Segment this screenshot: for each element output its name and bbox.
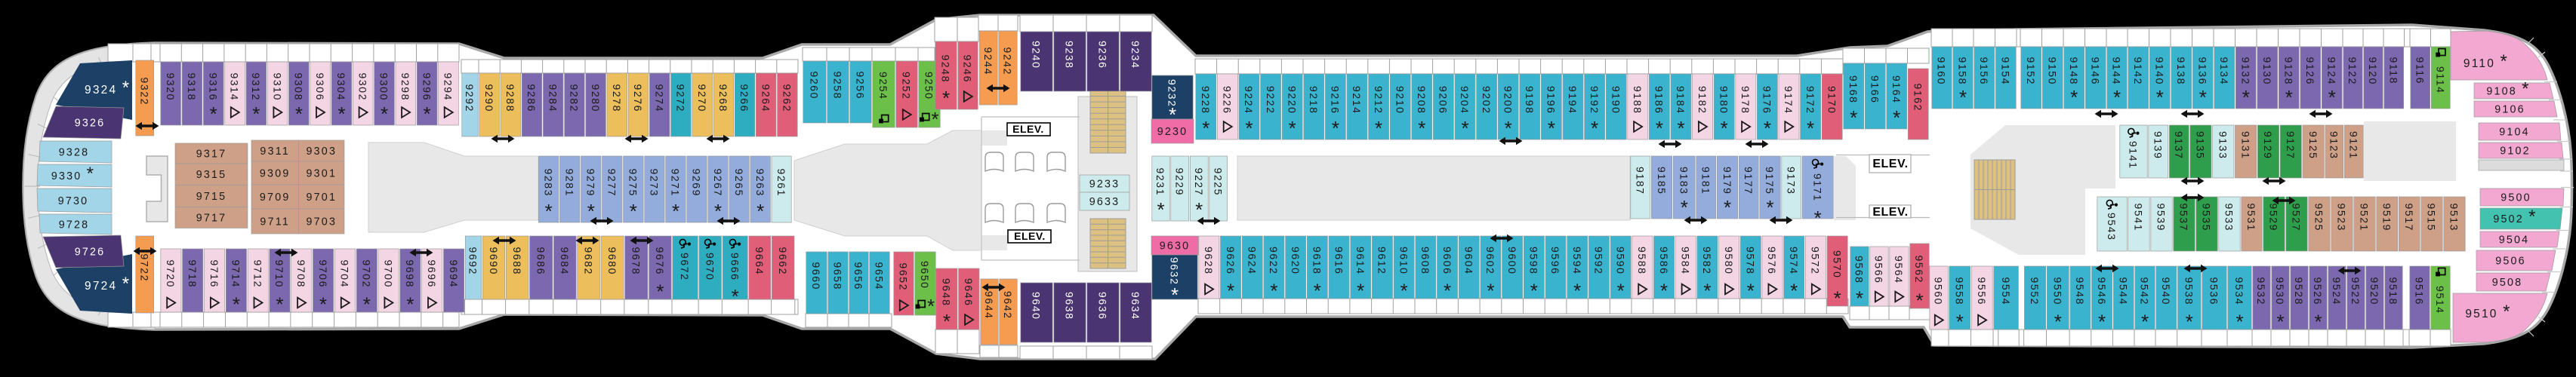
svg-text:9626: 9626: [1225, 247, 1237, 275]
svg-text:9586: 9586: [1658, 247, 1670, 275]
svg-text:9172: 9172: [1804, 86, 1816, 115]
svg-text:9320: 9320: [165, 73, 177, 102]
svg-text:9164: 9164: [1890, 75, 1903, 104]
svg-text:9614: 9614: [1354, 247, 1367, 275]
svg-text:*: *: [1573, 280, 1581, 302]
svg-text:9518: 9518: [2387, 277, 2399, 306]
svg-text:9272: 9272: [675, 84, 687, 113]
svg-text:9224: 9224: [1243, 86, 1255, 115]
svg-text:9630: 9630: [1160, 241, 1191, 253]
svg-text:9524: 9524: [2331, 277, 2343, 306]
svg-text:9194: 9194: [1567, 86, 1579, 115]
svg-text:9650: 9650: [919, 261, 931, 290]
svg-text:9183: 9183: [1678, 167, 1690, 195]
svg-text:9104: 9104: [2499, 127, 2530, 139]
svg-text:9678: 9678: [630, 247, 642, 276]
svg-text:*: *: [2156, 86, 2164, 109]
svg-text:9540: 9540: [2160, 277, 2172, 306]
svg-text:*: *: [732, 285, 739, 308]
svg-text:9178: 9178: [1739, 86, 1752, 115]
svg-text:9220: 9220: [1286, 86, 1298, 115]
svg-text:9231: 9231: [1154, 168, 1166, 197]
svg-text:*: *: [2328, 86, 2336, 109]
svg-text:*: *: [931, 108, 938, 130]
svg-text:*: *: [1332, 117, 1339, 139]
svg-text:*: *: [1814, 207, 1822, 229]
svg-text:9680: 9680: [606, 247, 618, 276]
svg-text:9692: 9692: [467, 247, 479, 276]
svg-text:*: *: [1660, 280, 1668, 302]
svg-text:9138: 9138: [2175, 57, 2187, 86]
svg-text:9516: 9516: [2414, 277, 2426, 306]
svg-text:9162: 9162: [1912, 84, 1924, 112]
svg-text:9612: 9612: [1376, 247, 1388, 275]
svg-text:9515: 9515: [2426, 204, 2438, 232]
svg-text:9186: 9186: [1653, 86, 1665, 115]
svg-text:*: *: [295, 103, 303, 125]
svg-text:*: *: [1747, 280, 1755, 302]
svg-text:9248: 9248: [940, 55, 952, 84]
svg-text:9258: 9258: [832, 72, 844, 100]
svg-text:9218: 9218: [1308, 86, 1320, 115]
svg-text:*: *: [2070, 86, 2078, 109]
svg-text:9694: 9694: [448, 260, 460, 289]
svg-text:9652: 9652: [898, 263, 910, 292]
svg-text:9519: 9519: [2380, 204, 2393, 232]
svg-text:9261: 9261: [775, 169, 787, 198]
svg-text:9514: 9514: [2434, 286, 2446, 314]
svg-text:9282: 9282: [569, 84, 581, 113]
svg-text:9711: 9711: [260, 216, 290, 228]
svg-text:9676: 9676: [654, 247, 666, 276]
svg-text:9234: 9234: [1129, 41, 1142, 69]
svg-text:9541: 9541: [2133, 204, 2145, 232]
svg-text:9148: 9148: [2068, 57, 2080, 86]
svg-text:9290: 9290: [483, 84, 495, 113]
svg-text:9523: 9523: [2336, 204, 2348, 232]
svg-text:9310: 9310: [271, 73, 283, 102]
svg-text:9266: 9266: [738, 84, 750, 113]
svg-text:9142: 9142: [2132, 57, 2144, 86]
svg-text:9646: 9646: [963, 278, 975, 307]
svg-text:9600: 9600: [1506, 247, 1518, 275]
svg-text:9726: 9726: [75, 247, 106, 259]
svg-text:9204: 9204: [1459, 86, 1471, 115]
svg-text:ELEV.: ELEV.: [1872, 206, 1908, 219]
svg-text:9225: 9225: [1212, 168, 1224, 197]
svg-text:9686: 9686: [535, 247, 547, 276]
svg-text:9116: 9116: [2414, 57, 2426, 85]
svg-text:9276: 9276: [632, 84, 644, 113]
svg-text:9566: 9566: [1873, 256, 1885, 284]
svg-text:9120: 9120: [2367, 57, 2379, 86]
svg-text:9294: 9294: [442, 73, 454, 102]
svg-text:9602: 9602: [1484, 247, 1496, 275]
svg-text:9538: 9538: [2183, 277, 2195, 306]
svg-text:9129: 9129: [2262, 131, 2274, 160]
svg-text:*: *: [2242, 86, 2250, 109]
svg-text:9268: 9268: [717, 84, 729, 113]
svg-text:*: *: [2314, 311, 2322, 333]
svg-text:9288: 9288: [504, 84, 516, 113]
svg-text:*: *: [2236, 311, 2243, 333]
svg-text:9648: 9648: [941, 278, 953, 307]
svg-text:9300: 9300: [378, 73, 390, 102]
svg-text:9279: 9279: [585, 169, 597, 198]
svg-text:9154: 9154: [1999, 57, 2011, 86]
svg-text:*: *: [1834, 287, 1841, 310]
svg-text:9177: 9177: [1742, 167, 1755, 195]
svg-text:9144: 9144: [2111, 57, 2123, 86]
svg-text:9508: 9508: [2492, 277, 2523, 289]
svg-text:*: *: [1956, 311, 1964, 333]
svg-text:9156: 9156: [1978, 57, 1990, 86]
svg-text:ELEV.: ELEV.: [1014, 230, 1046, 242]
svg-text:*: *: [1202, 117, 1209, 139]
svg-text:9304: 9304: [335, 73, 347, 102]
svg-text:9560: 9560: [1933, 277, 1945, 306]
svg-text:9633: 9633: [1089, 196, 1120, 208]
svg-text:9550: 9550: [2052, 277, 2064, 306]
svg-text:9263: 9263: [754, 169, 766, 198]
svg-text:*: *: [1314, 280, 1321, 302]
svg-text:9242: 9242: [1002, 48, 1014, 76]
svg-text:9532: 9532: [2255, 277, 2267, 306]
svg-text:*: *: [2199, 86, 2207, 109]
svg-text:9132: 9132: [2239, 57, 2251, 86]
svg-text:9658: 9658: [832, 262, 844, 291]
svg-text:9628: 9628: [1203, 247, 1215, 275]
svg-text:9708: 9708: [295, 260, 307, 289]
svg-text:9672: 9672: [679, 253, 691, 281]
svg-text:9222: 9222: [1265, 86, 1277, 115]
svg-text:9572: 9572: [1810, 247, 1822, 275]
svg-text:9228: 9228: [1200, 86, 1212, 115]
svg-text:9134: 9134: [2218, 57, 2230, 86]
svg-text:9152: 9152: [2025, 57, 2037, 86]
svg-text:9166: 9166: [1869, 75, 1881, 104]
svg-text:9640: 9640: [1031, 292, 1043, 320]
svg-text:9660: 9660: [810, 262, 822, 291]
svg-text:9182: 9182: [1696, 86, 1709, 115]
svg-text:9590: 9590: [1614, 247, 1626, 275]
svg-text:9536: 9536: [2208, 277, 2220, 306]
svg-text:9584: 9584: [1679, 247, 1691, 275]
svg-text:*: *: [1375, 117, 1382, 139]
svg-text:9716: 9716: [208, 260, 220, 289]
svg-text:9114: 9114: [2434, 66, 2446, 94]
svg-text:9539: 9539: [2155, 204, 2168, 232]
svg-text:9529: 9529: [2268, 204, 2280, 232]
svg-text:9527: 9527: [2291, 204, 2303, 232]
svg-text:9670: 9670: [704, 253, 716, 281]
svg-text:9256: 9256: [855, 72, 867, 100]
svg-text:ELEV.: ELEV.: [1872, 158, 1908, 170]
svg-text:9710: 9710: [273, 260, 285, 289]
svg-text:9118: 9118: [2387, 57, 2399, 85]
svg-text:9150: 9150: [2046, 57, 2058, 86]
svg-text:*: *: [1724, 196, 1731, 219]
svg-text:9260: 9260: [809, 72, 821, 100]
svg-text:*: *: [656, 280, 664, 303]
svg-text:9562: 9562: [1913, 256, 1925, 284]
svg-text:9122: 9122: [2346, 57, 2359, 86]
svg-text:*: *: [1227, 280, 1234, 302]
svg-text:9314: 9314: [229, 73, 241, 102]
svg-text:9642: 9642: [1002, 291, 1014, 320]
svg-text:9554: 9554: [2000, 277, 2012, 306]
svg-text:*: *: [943, 310, 951, 333]
svg-text:*: *: [672, 200, 679, 222]
svg-text:9280: 9280: [590, 84, 602, 113]
svg-text:*: *: [1245, 117, 1253, 139]
svg-text:*: *: [1289, 117, 1296, 139]
svg-text:9564: 9564: [1893, 256, 1905, 284]
svg-text:9180: 9180: [1718, 86, 1730, 115]
svg-text:9303: 9303: [306, 146, 337, 158]
svg-text:9102: 9102: [2500, 146, 2531, 158]
svg-text:9212: 9212: [1373, 86, 1385, 115]
svg-text:*: *: [1270, 280, 1277, 302]
svg-text:*: *: [1915, 290, 1923, 312]
svg-text:9254: 9254: [877, 72, 889, 100]
svg-text:9703: 9703: [306, 216, 337, 228]
svg-text:*: *: [381, 103, 388, 125]
svg-text:9233: 9233: [1089, 179, 1120, 191]
svg-text:9265: 9265: [733, 169, 745, 198]
svg-text:*: *: [545, 200, 553, 222]
svg-text:9226: 9226: [1222, 86, 1234, 115]
svg-text:9250: 9250: [923, 72, 935, 100]
svg-text:9244: 9244: [982, 48, 994, 76]
svg-text:9106: 9106: [2494, 104, 2525, 116]
svg-text:9537: 9537: [2178, 204, 2190, 232]
svg-text:9175: 9175: [1764, 167, 1776, 195]
svg-text:*: *: [927, 295, 935, 317]
svg-text:9171: 9171: [1811, 173, 1823, 202]
svg-text:9230: 9230: [1157, 126, 1188, 138]
svg-text:*: *: [1677, 117, 1684, 139]
svg-text:*: *: [1703, 280, 1711, 302]
svg-text:9286: 9286: [525, 84, 538, 113]
svg-text:9546: 9546: [2096, 277, 2108, 306]
svg-text:9714: 9714: [230, 260, 242, 289]
svg-text:9185: 9185: [1656, 167, 1668, 195]
svg-text:9273: 9273: [649, 169, 661, 198]
svg-text:9198: 9198: [1524, 86, 1536, 115]
svg-text:*: *: [2276, 311, 2284, 333]
svg-text:9135: 9135: [2195, 131, 2207, 160]
svg-text:9137: 9137: [2173, 131, 2185, 160]
svg-text:9690: 9690: [488, 247, 500, 276]
svg-text:*: *: [1591, 117, 1598, 139]
svg-text:9548: 9548: [2074, 277, 2086, 306]
svg-text:9196: 9196: [1545, 86, 1558, 115]
svg-text:9240: 9240: [1031, 41, 1043, 69]
svg-text:*: *: [1959, 86, 1967, 109]
svg-text:9284: 9284: [547, 84, 559, 113]
svg-text:*: *: [1530, 280, 1538, 302]
svg-text:9309: 9309: [260, 168, 291, 180]
svg-text:9720: 9720: [165, 260, 177, 289]
svg-text:9140: 9140: [2153, 57, 2165, 86]
svg-text:*: *: [2285, 86, 2293, 109]
svg-text:9271: 9271: [670, 169, 682, 198]
svg-text:9124: 9124: [2325, 57, 2337, 86]
svg-text:9298: 9298: [399, 73, 411, 102]
svg-text:9662: 9662: [777, 247, 789, 276]
svg-text:*: *: [2113, 86, 2121, 109]
svg-text:9141: 9141: [2128, 141, 2140, 170]
svg-text:*: *: [424, 103, 431, 125]
svg-text:*: *: [1893, 106, 1900, 129]
svg-text:9202: 9202: [1481, 86, 1493, 115]
svg-text:9128: 9128: [2282, 57, 2294, 86]
svg-text:9127: 9127: [2285, 131, 2297, 160]
svg-text:9139: 9139: [2152, 131, 2165, 160]
svg-text:9654: 9654: [874, 262, 886, 291]
svg-text:*: *: [2186, 311, 2193, 333]
svg-text:9315: 9315: [196, 169, 227, 181]
svg-text:*: *: [210, 103, 217, 125]
svg-text:9608: 9608: [1419, 247, 1431, 275]
svg-text:9229: 9229: [1174, 168, 1186, 197]
svg-text:9616: 9616: [1333, 247, 1345, 275]
svg-text:9318: 9318: [186, 73, 198, 102]
svg-text:9123: 9123: [2328, 131, 2340, 160]
svg-text:9500: 9500: [2501, 192, 2531, 204]
svg-text:9704: 9704: [339, 260, 351, 289]
svg-text:9570: 9570: [1831, 250, 1843, 279]
svg-text:*: *: [1656, 117, 1663, 139]
svg-text:9638: 9638: [1064, 292, 1076, 320]
svg-text:9568: 9568: [1853, 256, 1866, 284]
svg-text:9312: 9312: [250, 73, 262, 102]
svg-text:9556: 9556: [1976, 277, 1988, 306]
svg-text:ELEV.: ELEV.: [1012, 123, 1044, 135]
svg-text:9275: 9275: [627, 169, 639, 198]
svg-text:*: *: [1856, 287, 1863, 310]
svg-text:*: *: [1681, 196, 1688, 219]
svg-text:9728: 9728: [59, 219, 90, 231]
svg-text:*: *: [1171, 284, 1179, 306]
svg-text:9718: 9718: [186, 260, 199, 289]
svg-text:9206: 9206: [1437, 86, 1450, 115]
svg-text:9158: 9158: [1957, 57, 1969, 86]
svg-text:9270: 9270: [696, 84, 708, 113]
svg-text:*: *: [1444, 280, 1451, 302]
svg-text:9170: 9170: [1826, 86, 1838, 115]
svg-text:*: *: [942, 87, 950, 109]
svg-text:9596: 9596: [1549, 247, 1561, 275]
svg-text:9533: 9533: [2223, 204, 2236, 232]
svg-text:9121: 9121: [2348, 131, 2360, 160]
svg-text:*: *: [337, 103, 345, 125]
svg-text:*: *: [1400, 280, 1408, 302]
svg-text:9504: 9504: [2499, 234, 2530, 247]
svg-text:9316: 9316: [207, 73, 219, 102]
svg-text:*: *: [1548, 117, 1555, 139]
svg-text:9238: 9238: [1064, 41, 1076, 69]
svg-text:9624: 9624: [1246, 247, 1259, 275]
svg-text:9528: 9528: [2293, 277, 2305, 306]
svg-text:9190: 9190: [1610, 86, 1622, 115]
svg-text:9246: 9246: [962, 55, 974, 84]
svg-text:9236: 9236: [1097, 41, 1109, 69]
svg-text:9200: 9200: [1502, 86, 1514, 115]
svg-text:9574: 9574: [1788, 247, 1800, 275]
svg-text:*: *: [1766, 196, 1773, 219]
svg-text:9543: 9543: [2106, 213, 2118, 241]
svg-text:9644: 9644: [983, 291, 995, 320]
svg-text:*: *: [1617, 280, 1625, 302]
svg-text:*: *: [1357, 280, 1364, 302]
svg-text:9277: 9277: [606, 169, 618, 198]
svg-text:*: *: [1764, 117, 1771, 139]
svg-text:9278: 9278: [611, 84, 623, 113]
svg-text:9179: 9179: [1721, 167, 1733, 195]
svg-text:9506: 9506: [2495, 256, 2526, 268]
svg-text:9682: 9682: [583, 247, 595, 276]
svg-text:9125: 9125: [2307, 131, 2319, 160]
svg-text:9136: 9136: [2196, 57, 2208, 86]
svg-text:9701: 9701: [306, 192, 337, 204]
svg-text:9184: 9184: [1675, 86, 1687, 115]
svg-text:9576: 9576: [1766, 247, 1778, 275]
svg-text:9188: 9188: [1632, 86, 1644, 115]
svg-text:9292: 9292: [464, 84, 476, 113]
svg-text:9688: 9688: [511, 247, 523, 276]
svg-text:9604: 9604: [1463, 247, 1475, 275]
svg-text:*: *: [276, 293, 283, 316]
svg-text:9301: 9301: [306, 168, 337, 180]
svg-text:9146: 9146: [2089, 57, 2101, 86]
svg-text:9274: 9274: [653, 84, 665, 113]
svg-text:9520: 9520: [2368, 277, 2380, 306]
svg-text:*: *: [1418, 117, 1425, 139]
svg-text:9582: 9582: [1701, 247, 1713, 275]
svg-text:*: *: [756, 200, 764, 222]
svg-text:9715: 9715: [196, 191, 227, 203]
svg-text:9214: 9214: [1351, 86, 1363, 115]
svg-text:9622: 9622: [1268, 247, 1280, 275]
svg-text:9173: 9173: [1785, 167, 1797, 195]
svg-text:*: *: [1807, 117, 1814, 139]
svg-text:9181: 9181: [1700, 167, 1712, 195]
svg-text:9666: 9666: [729, 253, 741, 281]
svg-text:9664: 9664: [753, 247, 766, 276]
svg-text:9698: 9698: [404, 260, 416, 289]
svg-text:9513: 9513: [2448, 204, 2460, 232]
svg-text:*: *: [1721, 117, 1728, 139]
svg-text:*: *: [252, 103, 260, 125]
svg-text:9192: 9192: [1588, 86, 1601, 115]
svg-text:9558: 9558: [1953, 277, 1965, 306]
svg-text:9717: 9717: [196, 213, 227, 225]
svg-text:9522: 9522: [2350, 277, 2362, 306]
svg-text:9620: 9620: [1290, 247, 1302, 275]
svg-text:9632: 9632: [1169, 257, 1181, 286]
svg-text:9712: 9712: [251, 260, 263, 289]
svg-text:9210: 9210: [1394, 86, 1406, 115]
svg-text:9684: 9684: [559, 247, 571, 276]
svg-text:9126: 9126: [2304, 57, 2316, 86]
svg-text:9131: 9131: [2239, 131, 2251, 160]
svg-text:9283: 9283: [542, 169, 554, 198]
svg-text:9542: 9542: [2139, 277, 2151, 306]
svg-text:9702: 9702: [361, 260, 373, 289]
svg-text:9176: 9176: [1761, 86, 1773, 115]
